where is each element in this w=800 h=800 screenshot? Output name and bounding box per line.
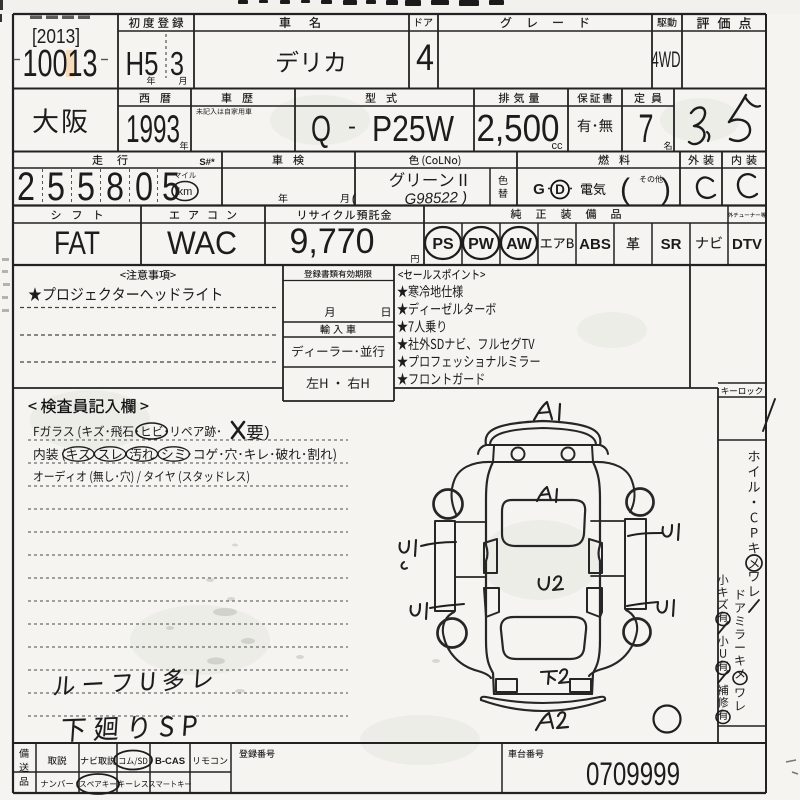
svg-text:3: 3 [170,45,184,82]
svg-text:-: - [348,113,356,140]
svg-text:D: D [555,182,565,197]
svg-text:): ) [661,173,671,206]
svg-text:9,770: 9,770 [290,222,375,261]
svg-text:S#*: S#* [199,157,215,168]
svg-text:0709999: 0709999 [586,756,680,792]
svg-text:PS: PS [432,236,454,253]
svg-text:Q: Q [311,108,331,149]
svg-text:km: km [178,186,193,198]
svg-text:B-CAS: B-CAS [155,756,185,767]
svg-text:(: ( [352,190,357,206]
svg-text:DTV: DTV [732,236,762,253]
svg-text:G: G [533,181,545,198]
svg-text:PW: PW [468,236,495,253]
svg-text:P25W: P25W [372,108,454,149]
svg-text:8: 8 [106,165,124,209]
svg-text:5: 5 [47,165,65,209]
svg-text:4WD: 4WD [652,47,681,72]
svg-text:FAT: FAT [54,225,100,261]
svg-text:WAC: WAC [167,225,237,261]
svg-text:4: 4 [416,37,434,78]
svg-text:AW: AW [506,236,533,253]
svg-text:1993: 1993 [126,108,180,151]
svg-text:5: 5 [77,165,95,209]
svg-text:0: 0 [135,165,153,209]
svg-text:2,500: 2,500 [477,108,560,150]
svg-text:(: ( [620,173,630,206]
svg-text:2: 2 [17,165,35,209]
svg-text:10013: 10013 [23,43,98,85]
svg-text:･: ･ [568,182,574,196]
svg-text:cc: cc [552,140,564,152]
svg-text:SR: SR [661,236,682,253]
svg-text:H5: H5 [126,45,159,82]
svg-text:G98522 ): G98522 ) [404,189,467,208]
svg-text:7: 7 [639,107,654,151]
svg-text:): ) [265,424,270,441]
svg-text:ABS: ABS [579,236,611,253]
